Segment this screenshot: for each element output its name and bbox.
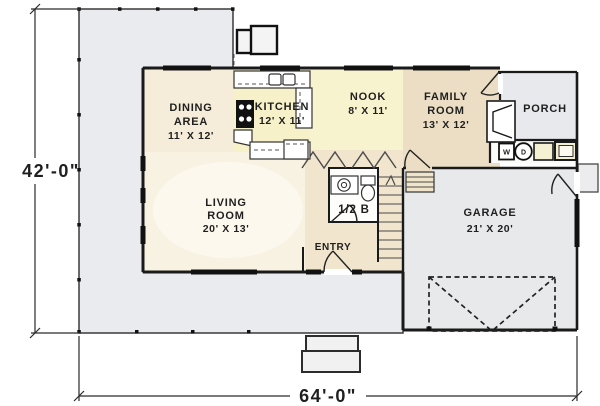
toilet-icon — [361, 176, 375, 201]
family-label-2: ROOM — [427, 105, 464, 117]
nook-label: NOOK — [350, 91, 386, 103]
washer-label: W — [503, 148, 511, 157]
dining-label-2: AREA — [174, 116, 208, 128]
chimney — [237, 26, 277, 54]
stove-icon — [236, 100, 254, 128]
family-size: 13' X 12' — [423, 119, 470, 131]
chimney-small-box — [237, 30, 252, 53]
garage-door-post-right — [553, 327, 558, 332]
garage-side-stoop — [578, 164, 598, 192]
dimension-height: 42'-0" — [22, 4, 81, 338]
floor-plan-drawing: W D 42'-0" 64'-0" — [0, 0, 600, 406]
family-label-1: FAMILY — [424, 91, 468, 103]
closet-2-inner — [559, 146, 573, 157]
nook-size: 8' X 11' — [348, 105, 388, 117]
garage-wall-window — [575, 199, 580, 247]
garage-door-post-left — [427, 327, 432, 332]
floor-plan: W D 42'-0" 64'-0" — [0, 0, 600, 406]
laundry-area: W D — [499, 142, 576, 160]
living-label-2: ROOM — [207, 210, 244, 222]
living-size: 20' X 13' — [203, 223, 250, 235]
dining-label-1: DINING — [169, 102, 212, 114]
chimney-large-box — [251, 26, 277, 54]
dryer-icon: D — [515, 143, 532, 160]
kitchen-size: 12' X 11' — [259, 115, 305, 127]
living-label-1: LIVING — [205, 197, 246, 209]
garage-entry-steps — [406, 172, 434, 192]
room-family — [403, 68, 500, 168]
refrigerator-icon — [284, 140, 308, 159]
dimension-height-label: 42'-0" — [22, 161, 80, 181]
dryer-label: D — [521, 150, 526, 157]
entry-label: ENTRY — [315, 242, 352, 253]
porch-label: PORCH — [523, 103, 567, 115]
washer-icon: W — [499, 144, 514, 160]
fireplace-icon — [487, 101, 515, 142]
dimension-width-label: 64'-0" — [299, 386, 357, 406]
half-bath-label: 1/2 B — [338, 204, 370, 216]
kitchen-label: KITCHEN — [255, 101, 310, 113]
bath-sink-icon — [338, 179, 350, 191]
garage-size: 21' X 20' — [467, 223, 514, 235]
closet-1 — [534, 143, 553, 160]
garage-label: GARAGE — [463, 207, 516, 219]
dining-size: 11' X 12' — [168, 130, 214, 142]
deck-steps — [302, 336, 360, 372]
